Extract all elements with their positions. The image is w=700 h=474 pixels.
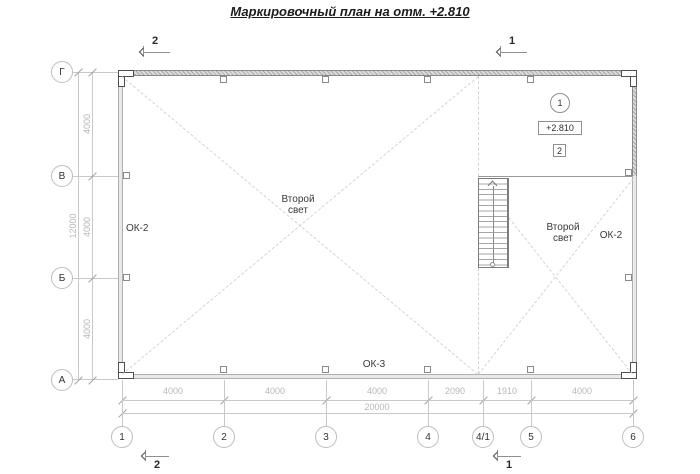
grid-bubble-3: 3 — [315, 426, 337, 448]
dim-value: 4000 — [82, 299, 92, 359]
dim-value: 1910 — [480, 386, 534, 396]
grid-bubble-g: Г — [51, 61, 73, 83]
column-marker — [123, 274, 130, 281]
section-number: 1 — [501, 459, 517, 471]
axis-leader — [428, 380, 429, 426]
column-marker — [322, 76, 329, 83]
column-marker — [527, 76, 534, 83]
axis-leader — [73, 176, 118, 177]
section-number: 2 — [147, 35, 163, 47]
column-marker — [322, 366, 329, 373]
dim-value: 4000 — [248, 386, 302, 396]
dim-value: 4000 — [555, 386, 609, 396]
axis-leader — [326, 380, 327, 426]
axis-leader — [483, 380, 484, 426]
wall-left — [118, 70, 123, 379]
corner-column-top-right — [621, 70, 637, 77]
dim-total-value: 20000 — [350, 402, 404, 412]
second-light-line2: свет — [533, 233, 593, 244]
axis-4-1-dashed — [478, 268, 479, 374]
section-cut-arrow-icon — [496, 48, 504, 56]
section-cut-arrow-icon — [141, 452, 149, 460]
wall-right-lower — [632, 176, 637, 379]
dim-total-value: 12000 — [68, 196, 78, 256]
grid-bubble-4: 4 — [417, 426, 439, 448]
column-marker — [424, 366, 431, 373]
platform-edge-line — [478, 176, 632, 177]
axis-leader — [531, 380, 532, 426]
column-marker — [220, 366, 227, 373]
section-cut-arrow-icon — [493, 452, 501, 460]
window-label-bottom: ОК-3 — [344, 359, 404, 370]
stair-walk-line-start — [490, 262, 495, 267]
column-marker — [527, 366, 534, 373]
column-marker — [625, 169, 632, 176]
corner-column-bottom-right — [621, 372, 637, 379]
axis-leader — [224, 380, 225, 426]
column-marker — [123, 172, 130, 179]
axis-4-1-dashed — [478, 76, 479, 176]
stair-walk-line — [493, 186, 494, 264]
axis-leader — [122, 380, 123, 426]
grid-bubble-a: А — [51, 369, 73, 391]
second-light-line2: свет — [268, 205, 328, 216]
grid-bubble-5: 5 — [520, 426, 542, 448]
dim-value: 4000 — [146, 386, 200, 396]
dim-value: 2090 — [428, 386, 482, 396]
detail-mark-square: 2 — [553, 144, 566, 157]
column-marker — [625, 274, 632, 281]
column-marker — [424, 76, 431, 83]
grid-bubble-b: Б — [51, 267, 73, 289]
axis-leader — [73, 72, 118, 73]
dim-line-left-segments — [92, 72, 93, 380]
elevation-mark: +2.810 — [538, 121, 582, 135]
axis-leader — [73, 278, 118, 279]
grid-bubble-4-1: 4/1 — [472, 426, 494, 448]
dim-value: 4000 — [82, 197, 92, 257]
grid-bubble-1: 1 — [111, 426, 133, 448]
axis-leader — [633, 380, 634, 426]
grid-bubble-v: В — [51, 165, 73, 187]
dim-value: 4000 — [82, 94, 92, 154]
wall-bottom — [118, 374, 637, 379]
wall-top — [118, 70, 637, 76]
second-light-line1: Второй — [268, 194, 328, 205]
second-light-label: Второй свет — [533, 222, 593, 244]
second-light-label: Второй свет — [268, 194, 328, 216]
position-mark-circle: 1 — [550, 93, 570, 113]
dim-line-left-total — [78, 72, 79, 380]
second-light-line1: Второй — [533, 222, 593, 233]
section-cut-arrow-icon — [139, 48, 147, 56]
section-number: 2 — [149, 459, 165, 471]
dim-line-bottom-total — [122, 413, 633, 414]
drawing-canvas: Маркировочный план на отм. +2.810 1 +2.8… — [0, 0, 700, 474]
window-label-right: ОК-2 — [589, 230, 633, 241]
grid-bubble-6: 6 — [622, 426, 644, 448]
corner-column-bottom-left — [118, 372, 134, 379]
dim-line-bottom-segments — [122, 400, 633, 401]
window-label-left: ОК-2 — [126, 223, 149, 234]
dim-value: 4000 — [350, 386, 404, 396]
grid-bubble-2: 2 — [213, 426, 235, 448]
page-title: Маркировочный план на отм. +2.810 — [0, 4, 700, 19]
section-number: 1 — [504, 35, 520, 47]
column-marker — [220, 76, 227, 83]
